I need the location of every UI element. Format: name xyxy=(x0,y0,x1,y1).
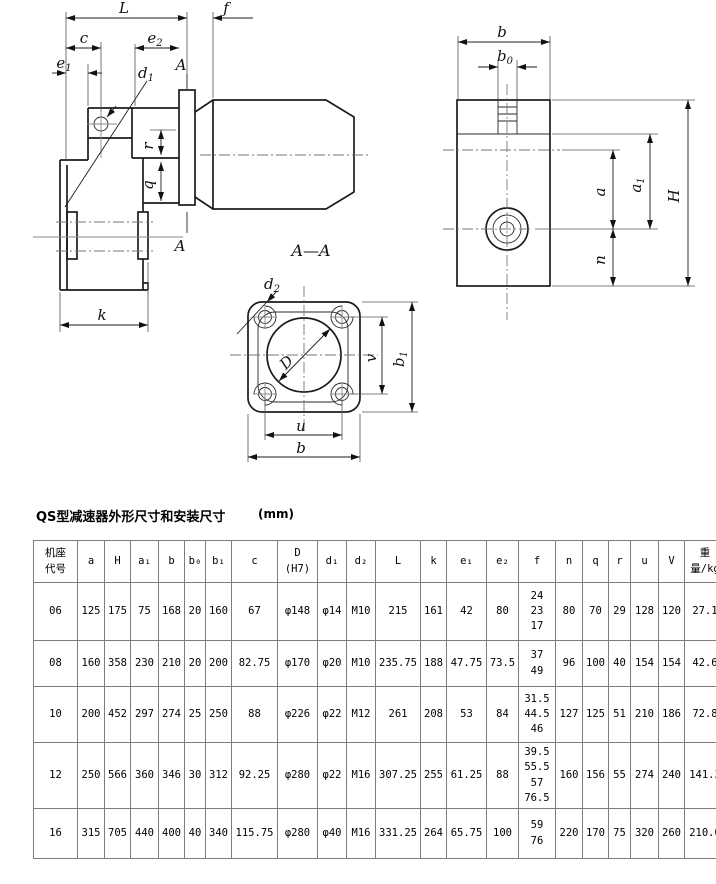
table-cell: 261 xyxy=(376,687,421,743)
table-cell: 264 xyxy=(421,809,447,859)
table-cell: φ40 xyxy=(318,809,347,859)
table-cell: φ20 xyxy=(318,641,347,687)
table-cell: 154 xyxy=(659,641,685,687)
table-cell: 16 xyxy=(34,809,78,859)
table-cell: 39.5 55.5 57 76.5 xyxy=(519,743,556,809)
column-header: H xyxy=(105,541,131,583)
column-header: r xyxy=(609,541,631,583)
table-cell: 59 76 xyxy=(519,809,556,859)
table-cell: 250 xyxy=(206,687,232,743)
table-cell: 82.75 xyxy=(232,641,278,687)
table-cell: 297 xyxy=(131,687,159,743)
shaft-hub-right xyxy=(138,212,148,259)
table-cell: 200 xyxy=(78,687,105,743)
table-cell: 210 xyxy=(159,641,185,687)
table-cell: 92.25 xyxy=(232,743,278,809)
header-row: 机座 代号aHa₁bb₀b₁cD (H7)d₁d₂Lke₁e₂fnqruV重 量… xyxy=(34,541,716,583)
table-cell: 55 xyxy=(609,743,631,809)
table-cell: 88 xyxy=(487,743,519,809)
table-cell: 115.75 xyxy=(232,809,278,859)
table-cell: 358 xyxy=(105,641,131,687)
column-header: f xyxy=(519,541,556,583)
table-cell: 250 xyxy=(78,743,105,809)
end-centerlines xyxy=(443,84,560,320)
table-cell: 96 xyxy=(556,641,583,687)
end-extension-lines xyxy=(458,36,695,286)
table-title: QS型减速器外形尺寸和安装尺寸 xyxy=(36,510,225,525)
table-cell: M10 xyxy=(347,641,376,687)
column-header: q xyxy=(583,541,609,583)
table-title-row: QS型减速器外形尺寸和安装尺寸 (mm) xyxy=(36,506,696,525)
table-cell: 42 xyxy=(447,583,487,641)
page: L f c e2 e1 d1 A A r q k b b0 a a1 H n A… xyxy=(0,0,716,884)
column-header: b₁ xyxy=(206,541,232,583)
table-cell: 20 xyxy=(185,583,206,641)
table-cell: 566 xyxy=(105,743,131,809)
column-header: c xyxy=(232,541,278,583)
dim-label-a1: a1 xyxy=(627,177,647,192)
table-cell: 12 xyxy=(34,743,78,809)
table-cell: 88 xyxy=(232,687,278,743)
table-cell: M12 xyxy=(347,687,376,743)
table-cell: M16 xyxy=(347,743,376,809)
section-title: A—A xyxy=(289,241,330,260)
dim-label-v: v xyxy=(362,353,380,362)
table-cell: 210 xyxy=(631,687,659,743)
column-header: 机座 代号 xyxy=(34,541,78,583)
motor-outline xyxy=(195,100,354,209)
table-cell: 156 xyxy=(583,743,609,809)
table-cell: 73.5 xyxy=(487,641,519,687)
table-cell: 08 xyxy=(34,641,78,687)
dim-label-H: H xyxy=(665,189,683,204)
dim-label-q: q xyxy=(139,180,157,190)
column-header: b₀ xyxy=(185,541,206,583)
table-cell: 61.25 xyxy=(447,743,487,809)
column-header: a xyxy=(78,541,105,583)
table-cell: 274 xyxy=(631,743,659,809)
table-cell: 25 xyxy=(185,687,206,743)
table-cell: 208 xyxy=(421,687,447,743)
table-cell: 53 xyxy=(447,687,487,743)
table-cell: 127 xyxy=(556,687,583,743)
d1-leader xyxy=(65,81,147,207)
shaft-hub-left xyxy=(67,212,77,259)
table-cell: 210.0 xyxy=(685,809,716,859)
table-cell: 75 xyxy=(609,809,631,859)
table-cell: 200 xyxy=(206,641,232,687)
table-unit: (mm) xyxy=(258,507,294,521)
column-header: n xyxy=(556,541,583,583)
table-cell: 175 xyxy=(105,583,131,641)
section-letter-A-top: A xyxy=(174,56,187,74)
table-cell: 40 xyxy=(609,641,631,687)
table-cell: φ22 xyxy=(318,743,347,809)
table-cell: 274 xyxy=(159,687,185,743)
table-cell: 235.75 xyxy=(376,641,421,687)
technical-drawing: L f c e2 e1 d1 A A r q k b b0 a a1 H n A… xyxy=(0,0,716,500)
section-letter-A-bottom: A xyxy=(173,237,186,255)
table-cell: 186 xyxy=(659,687,685,743)
column-header: V xyxy=(659,541,685,583)
dim-label-d1: d1 xyxy=(138,64,154,84)
column-header: 重 量/kg xyxy=(685,541,716,583)
dim-label-f: f xyxy=(222,0,231,17)
side-view: L f c e2 e1 d1 A A r q k xyxy=(33,0,368,332)
table-cell: 80 xyxy=(487,583,519,641)
table-cell: 37 49 xyxy=(519,641,556,687)
table-cell: 125 xyxy=(78,583,105,641)
table-cell: 100 xyxy=(487,809,519,859)
table-row: 06125175751682016067φ148φ14M102151614280… xyxy=(34,583,716,641)
table-cell: 255 xyxy=(421,743,447,809)
dim-label-c: c xyxy=(80,29,89,47)
table-cell: 307.25 xyxy=(376,743,421,809)
table-cell: 154 xyxy=(631,641,659,687)
dim-label-b-section: b xyxy=(296,439,306,457)
table-cell: 67 xyxy=(232,583,278,641)
dim-label-d2: d2 xyxy=(264,275,280,295)
table-cell: 30 xyxy=(185,743,206,809)
table-cell: 215 xyxy=(376,583,421,641)
table-cell: 168 xyxy=(159,583,185,641)
section-view-AA: A—A D d2 u b v b1 xyxy=(230,241,418,462)
end-details xyxy=(457,100,550,134)
extension-lines xyxy=(60,12,213,332)
table-cell: φ280 xyxy=(278,743,318,809)
column-header: L xyxy=(376,541,421,583)
table-cell: 160 xyxy=(206,583,232,641)
column-header: b xyxy=(159,541,185,583)
table-row: 081603582302102020082.75φ170φ20M10235.75… xyxy=(34,641,716,687)
hole-centerlines xyxy=(87,112,117,158)
motor-flange xyxy=(179,90,195,205)
table-cell: 31.5 44.5 46 xyxy=(519,687,556,743)
column-header: D (H7) xyxy=(278,541,318,583)
table-cell: 340 xyxy=(206,809,232,859)
column-header: a₁ xyxy=(131,541,159,583)
table-cell: 24 23 17 xyxy=(519,583,556,641)
table-cell: 705 xyxy=(105,809,131,859)
table-cell: 27.1 xyxy=(685,583,716,641)
column-header: u xyxy=(631,541,659,583)
table-cell: 220 xyxy=(556,809,583,859)
table-cell: φ226 xyxy=(278,687,318,743)
end-view: b b0 a a1 H n xyxy=(443,23,695,320)
table-cell: φ14 xyxy=(318,583,347,641)
table-cell: 120 xyxy=(659,583,685,641)
dim-label-b1: b1 xyxy=(390,351,410,367)
dim-label-e1: e1 xyxy=(56,54,71,74)
column-header: k xyxy=(421,541,447,583)
table-cell: 312 xyxy=(206,743,232,809)
dim-label-k: k xyxy=(97,306,106,324)
table-cell: 320 xyxy=(631,809,659,859)
dim-label-b-end: b xyxy=(497,23,507,41)
table-cell: 315 xyxy=(78,809,105,859)
column-header: e₁ xyxy=(447,541,487,583)
table-cell: 70 xyxy=(583,583,609,641)
table-cell: 400 xyxy=(159,809,185,859)
table-cell: 20 xyxy=(185,641,206,687)
table-cell: 160 xyxy=(556,743,583,809)
table-cell: 84 xyxy=(487,687,519,743)
table-cell: 240 xyxy=(659,743,685,809)
table-cell: 440 xyxy=(131,809,159,859)
column-header: d₂ xyxy=(347,541,376,583)
table-cell: M16 xyxy=(347,809,376,859)
table-cell: 170 xyxy=(583,809,609,859)
table-cell: φ22 xyxy=(318,687,347,743)
table-cell: 06 xyxy=(34,583,78,641)
section-extension-lines xyxy=(248,302,418,462)
table-cell: 40 xyxy=(185,809,206,859)
table-cell: 128 xyxy=(631,583,659,641)
table-cell: φ280 xyxy=(278,809,318,859)
table-row: 1631570544040040340115.75φ280φ40M16331.2… xyxy=(34,809,716,859)
table-row: 102004522972742525088φ226φ22M12261208538… xyxy=(34,687,716,743)
dimension-table: 机座 代号aHa₁bb₀b₁cD (H7)d₁d₂Lke₁e₂fnqruV重 量… xyxy=(33,540,716,859)
table-cell: 65.75 xyxy=(447,809,487,859)
column-header: d₁ xyxy=(318,541,347,583)
table-cell: 10 xyxy=(34,687,78,743)
dim-label-b0: b0 xyxy=(497,47,514,67)
table-cell: 331.25 xyxy=(376,809,421,859)
dim-label-u: u xyxy=(296,417,306,435)
table-cell: 260 xyxy=(659,809,685,859)
table-cell: 160 xyxy=(78,641,105,687)
table-cell: φ170 xyxy=(278,641,318,687)
end-body-outline xyxy=(457,100,550,286)
table-cell: 72.8 xyxy=(685,687,716,743)
table-cell: M10 xyxy=(347,583,376,641)
table-cell: 346 xyxy=(159,743,185,809)
dim-label-r: r xyxy=(139,142,157,150)
dim-label-e2: e2 xyxy=(147,29,162,49)
table-row: 122505663603463031292.25φ280φ22M16307.25… xyxy=(34,743,716,809)
table-cell: 80 xyxy=(556,583,583,641)
table-cell: 47.75 xyxy=(447,641,487,687)
table-cell: 125 xyxy=(583,687,609,743)
dim-label-n: n xyxy=(591,255,609,265)
dim-label-a: a xyxy=(591,188,609,197)
table-cell: 42.6 xyxy=(685,641,716,687)
table-cell: 188 xyxy=(421,641,447,687)
table-cell: 100 xyxy=(583,641,609,687)
table-cell: 230 xyxy=(131,641,159,687)
table-cell: 161 xyxy=(421,583,447,641)
table-cell: 75 xyxy=(131,583,159,641)
dim-label-L: L xyxy=(118,0,129,17)
table-cell: 452 xyxy=(105,687,131,743)
table-cell: 360 xyxy=(131,743,159,809)
column-header: e₂ xyxy=(487,541,519,583)
table-cell: 51 xyxy=(609,687,631,743)
table-cell: 29 xyxy=(609,583,631,641)
table-cell: 141.3 xyxy=(685,743,716,809)
table-cell: φ148 xyxy=(278,583,318,641)
